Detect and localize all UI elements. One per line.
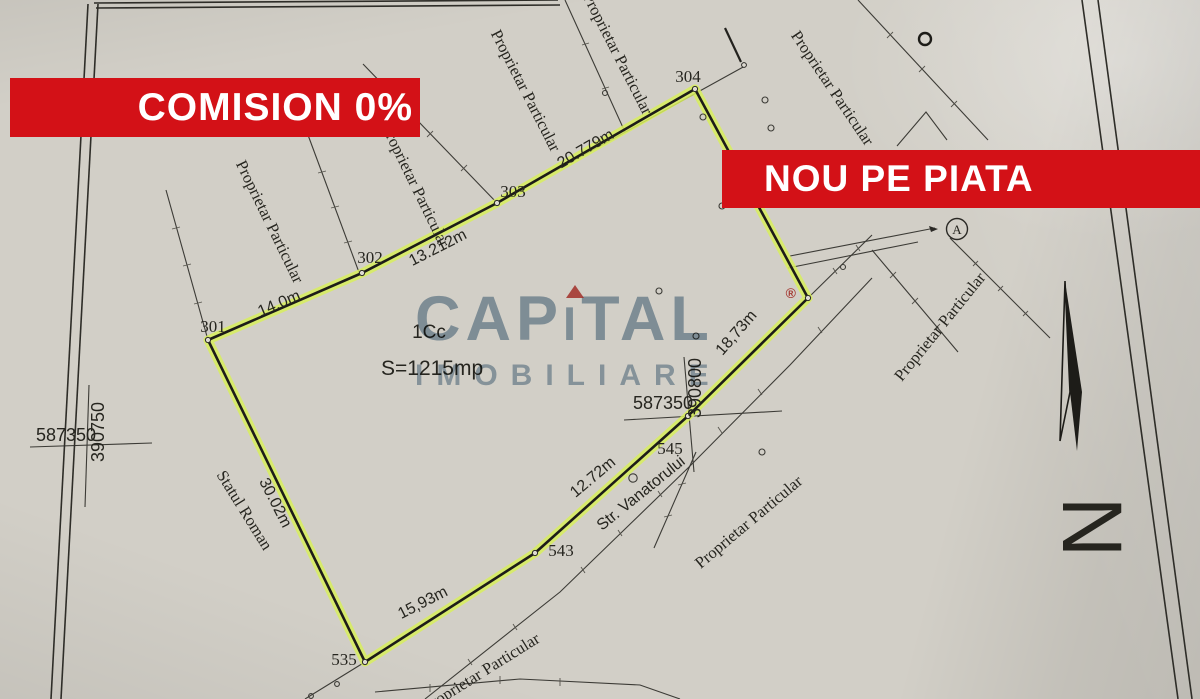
lot-line xyxy=(308,135,360,275)
parcel-boundary xyxy=(208,89,808,662)
point-label-303: 303 xyxy=(500,182,526,201)
point-label-543: 543 xyxy=(548,541,574,560)
commission-banner: COMISION 0% xyxy=(10,78,420,137)
owner-label: Proprietar Particular xyxy=(787,27,878,149)
building-corner-line xyxy=(897,112,947,146)
banner-edge-sliver xyxy=(1192,150,1200,208)
point-label-304: 304 xyxy=(675,67,701,86)
corner-hook-line xyxy=(725,28,741,62)
boundary-line-bottom xyxy=(375,679,680,699)
new-on-market-banner: NOU PE PIATA xyxy=(722,150,1192,208)
owner-label: Proprietar Particular xyxy=(378,121,454,250)
measurement-1272m: 12.72m xyxy=(567,454,619,501)
parcel-highlight xyxy=(208,89,808,662)
marker-a-label: A xyxy=(952,222,962,237)
measurement-20779m: 20.779m xyxy=(555,126,617,172)
parcel-code: 1Cc xyxy=(412,322,446,343)
owner-label: Proprietar Particular xyxy=(579,0,657,118)
bold-survey-marker xyxy=(919,33,931,45)
ditch-line xyxy=(788,242,918,268)
north-arrow: N xyxy=(1045,281,1139,557)
point-label-301: 301 xyxy=(200,317,226,336)
measurement-14m: 14.0m xyxy=(255,287,303,320)
commission-banner-text: COMISION 0% xyxy=(138,86,413,130)
owner-label: Proprietar Particular xyxy=(232,157,308,286)
north-arrow-fill xyxy=(1065,281,1082,451)
point-label-302: 302 xyxy=(357,248,383,267)
grid-coord-y-right: 390800 xyxy=(685,358,705,418)
owner-label: Proprietar Particular xyxy=(691,471,806,572)
owner-label: Proprietar Particular xyxy=(419,628,543,699)
ditch-line xyxy=(790,228,935,256)
north-label: N xyxy=(1045,497,1139,558)
owner-label: Proprietar Particular xyxy=(890,268,990,385)
cadastral-map-screenshot: N 301 302 303 304 535 543 545 14.0m 13.2… xyxy=(0,0,1200,699)
lot-line xyxy=(858,0,988,140)
point-label-535: 535 xyxy=(331,650,357,669)
grid-coord-y-left: 390750 xyxy=(88,402,108,462)
frame-top-line xyxy=(94,0,558,3)
parcel-area: S=1215mp xyxy=(381,357,483,380)
frame-right-line xyxy=(1082,0,1178,699)
marker-a-arrowhead xyxy=(929,226,938,232)
frame-right-line xyxy=(1098,0,1192,699)
frame-top-line xyxy=(96,5,560,8)
owner-label: Proprietar Particular xyxy=(487,26,565,155)
new-on-market-banner-text: NOU PE PIATA xyxy=(764,158,1034,200)
